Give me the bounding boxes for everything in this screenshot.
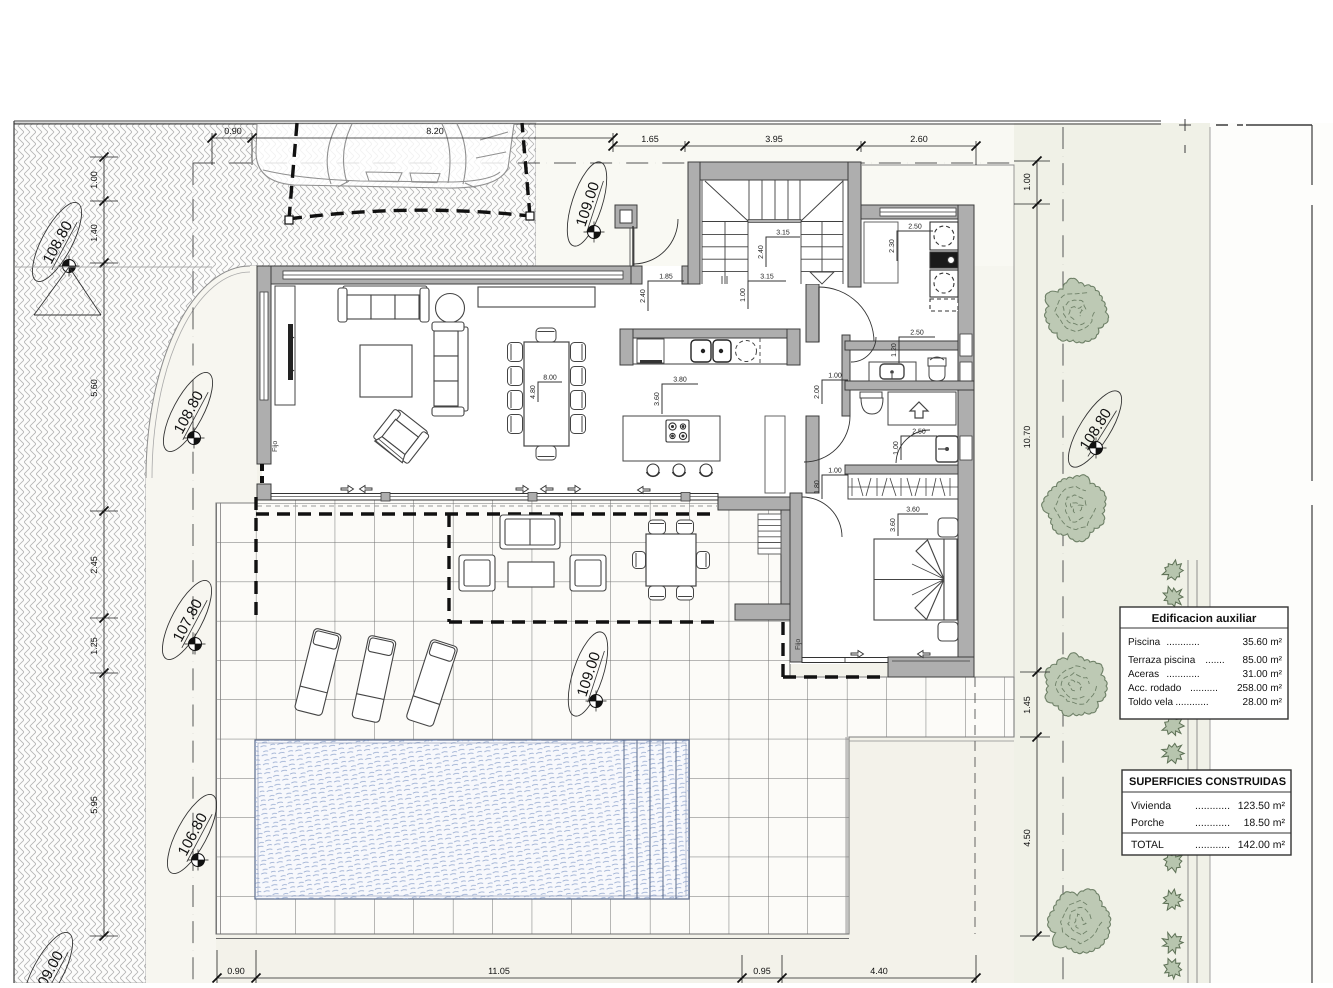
svg-text:2.60: 2.60 <box>910 134 928 144</box>
svg-text:1.00: 1.00 <box>828 468 842 475</box>
svg-text:11.05: 11.05 <box>488 966 510 976</box>
svg-text:2.00: 2.00 <box>814 385 821 399</box>
svg-text:3.60: 3.60 <box>890 518 897 532</box>
svg-text:3.15: 3.15 <box>776 230 790 237</box>
svg-text:4.40: 4.40 <box>870 966 888 976</box>
svg-text:Edificacion auxiliar: Edificacion auxiliar <box>1152 613 1257 625</box>
svg-text:1.00: 1.00 <box>828 373 842 380</box>
svg-text:5.60: 5.60 <box>89 379 99 397</box>
svg-text:5.95: 5.95 <box>89 796 99 814</box>
svg-text:Porche: Porche <box>1131 817 1164 829</box>
svg-text:0.90: 0.90 <box>227 966 245 976</box>
svg-text:1.00: 1.00 <box>893 441 900 455</box>
svg-text:Toldo vela: Toldo vela <box>1128 697 1173 708</box>
svg-text:0.90: 0.90 <box>224 126 242 136</box>
svg-text:35.60 m²: 35.60 m² <box>1243 637 1283 648</box>
svg-text:18.50 m²: 18.50 m² <box>1244 817 1286 829</box>
svg-text:1.00: 1.00 <box>1022 173 1032 191</box>
svg-text:123.50 m²: 123.50 m² <box>1238 800 1286 812</box>
svg-text:10.70: 10.70 <box>1022 426 1032 449</box>
svg-text:0.95: 0.95 <box>753 966 771 976</box>
svg-text:3.60: 3.60 <box>906 507 920 514</box>
svg-text:1.85: 1.85 <box>659 274 673 281</box>
svg-text:1.25: 1.25 <box>89 637 99 655</box>
svg-text:Fijo: Fijo <box>794 639 802 650</box>
svg-text:31.00 m²: 31.00 m² <box>1243 669 1283 680</box>
svg-text:3.80: 3.80 <box>673 377 687 384</box>
svg-text:1.45: 1.45 <box>1022 696 1032 714</box>
svg-text:Terraza piscina: Terraza piscina <box>1128 655 1196 666</box>
svg-text:2.40: 2.40 <box>758 245 765 259</box>
svg-text:28.00 m²: 28.00 m² <box>1243 697 1283 708</box>
svg-text:............: ............ <box>1166 669 1199 680</box>
svg-text:1.65: 1.65 <box>641 134 659 144</box>
svg-text:2.40: 2.40 <box>640 289 647 303</box>
svg-text:............: ............ <box>1195 839 1230 851</box>
svg-text:..........: .......... <box>1190 683 1218 694</box>
svg-text:3.60: 3.60 <box>654 392 661 406</box>
svg-text:2.50: 2.50 <box>910 330 924 337</box>
svg-text:............: ............ <box>1175 697 1208 708</box>
svg-text:............: ............ <box>1195 800 1230 812</box>
svg-text:142.00 m²: 142.00 m² <box>1238 839 1286 851</box>
svg-text:Fijo: Fijo <box>271 441 279 452</box>
svg-text:2.45: 2.45 <box>89 556 99 574</box>
svg-text:Piscina: Piscina <box>1128 637 1161 648</box>
svg-text:258.00 m²: 258.00 m² <box>1237 683 1283 694</box>
svg-text:1.80: 1.80 <box>814 480 821 494</box>
svg-text:3.15: 3.15 <box>760 274 774 281</box>
svg-text:4.80: 4.80 <box>530 385 537 399</box>
svg-text:1.40: 1.40 <box>89 224 99 242</box>
svg-text:Vivienda: Vivienda <box>1131 800 1171 812</box>
svg-text:............: ............ <box>1195 817 1230 829</box>
svg-text:Aceras: Aceras <box>1128 669 1159 680</box>
svg-text:1.00: 1.00 <box>740 288 747 302</box>
svg-text:8.20: 8.20 <box>426 126 444 136</box>
svg-text:85.00 m²: 85.00 m² <box>1243 655 1283 666</box>
svg-text:TOTAL: TOTAL <box>1131 839 1164 851</box>
svg-text:............: ............ <box>1166 637 1199 648</box>
svg-text:2.50: 2.50 <box>912 429 926 436</box>
svg-text:2.50: 2.50 <box>908 224 922 231</box>
svg-text:1.20: 1.20 <box>891 343 898 357</box>
svg-text:1.00: 1.00 <box>89 171 99 189</box>
svg-text:8.00: 8.00 <box>543 375 557 382</box>
svg-text:.......: ....... <box>1205 655 1224 666</box>
svg-text:SUPERFICIES CONSTRUIDAS: SUPERFICIES CONSTRUIDAS <box>1129 776 1286 788</box>
svg-text:Acc. rodado: Acc. rodado <box>1128 683 1182 694</box>
svg-text:3.95: 3.95 <box>765 134 783 144</box>
svg-text:2.30: 2.30 <box>889 239 896 253</box>
svg-text:4.50: 4.50 <box>1022 829 1032 847</box>
